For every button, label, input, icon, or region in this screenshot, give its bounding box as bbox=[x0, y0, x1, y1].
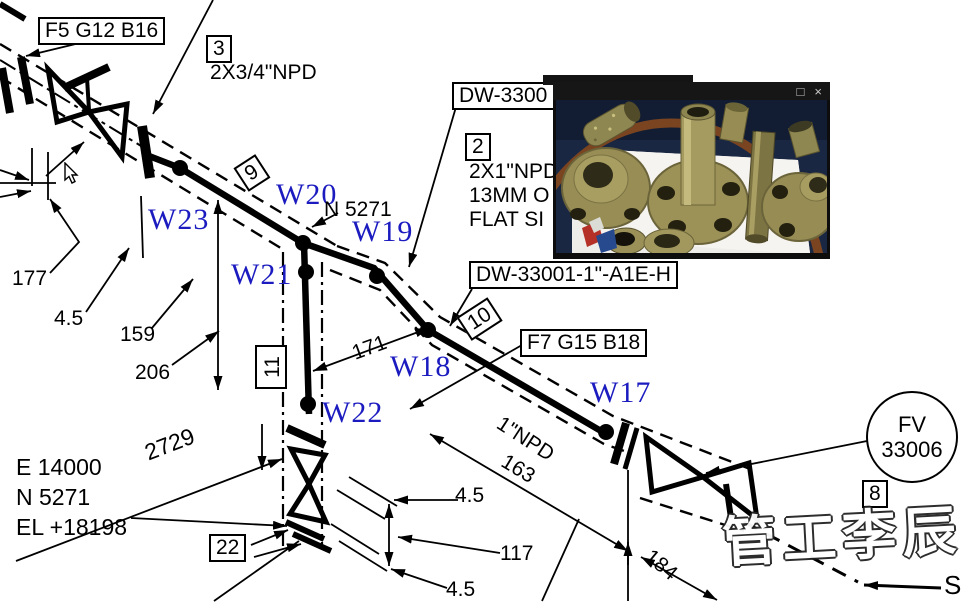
dim-4-5-a: 4.5 bbox=[54, 307, 83, 331]
label-2x34npd: 2X3/4"NPD bbox=[210, 61, 317, 85]
tag-box-f5-g12-b16: F5 G12 B16 bbox=[38, 17, 165, 45]
fv-tag-line2: 33006 bbox=[881, 437, 942, 462]
mouse-cursor-icon bbox=[64, 162, 82, 186]
dim-4-5-c: 4.5 bbox=[446, 578, 475, 602]
maximize-icon[interactable]: □ bbox=[797, 85, 805, 98]
tag-box-f7-g15-b18: F7 G15 B18 bbox=[520, 329, 647, 357]
close-icon[interactable]: × bbox=[814, 85, 822, 98]
tag-box-11-text: 11 bbox=[253, 356, 293, 378]
weld-label-w21: W21 bbox=[231, 258, 292, 292]
label-13mm: 13MM O bbox=[469, 184, 553, 208]
tag-box-22: 22 bbox=[209, 534, 246, 562]
label-n5271: N 5271 bbox=[324, 198, 392, 222]
dim-159: 159 bbox=[120, 323, 155, 347]
watermark-text: 管工李辰 bbox=[720, 486, 964, 578]
instrument-tag-fv-33006: FV 33006 bbox=[866, 391, 958, 483]
fv-tag-line1: FV bbox=[898, 412, 926, 437]
tag-box-11: 11 bbox=[255, 345, 287, 389]
coordinate-north: N 5271 bbox=[16, 482, 127, 512]
coordinate-block: E 14000 N 5271 EL +18198 bbox=[16, 452, 127, 542]
photo-window-titlebar[interactable]: □ × bbox=[553, 82, 830, 100]
weld-label-w23: W23 bbox=[148, 203, 209, 237]
dim-206: 206 bbox=[135, 361, 170, 385]
pipe-fittings-photo bbox=[556, 100, 827, 253]
photo-viewer-window[interactable]: □ × bbox=[553, 82, 830, 259]
tag-box-dw33001: DW-33001-1"-A1E-H bbox=[469, 261, 678, 289]
label-2x1npd: 2X1"NPD bbox=[469, 160, 553, 184]
left-flange bbox=[562, 148, 650, 228]
isometric-piping-drawing: F5 G12 B16 3 2X3/4"NPD DW-3300 2 2X1"NPD… bbox=[0, 0, 964, 602]
weld-label-w22: W22 bbox=[322, 396, 383, 430]
dim-117: 117 bbox=[500, 542, 533, 566]
weld-label-w17: W17 bbox=[590, 376, 651, 410]
label-flat: FLAT SI bbox=[469, 208, 553, 232]
dim-177: 177 bbox=[12, 267, 47, 291]
tag-box-dw3300: DW-3300 bbox=[452, 82, 565, 110]
tag-box-2: 2 bbox=[465, 133, 491, 161]
dim-4-5-b: 4.5 bbox=[455, 484, 484, 508]
coordinate-elevation: EL +18198 bbox=[16, 512, 127, 542]
tag-box-3: 3 bbox=[206, 35, 232, 63]
weld-label-w18: W18 bbox=[390, 350, 451, 384]
label-flow-s: S bbox=[944, 570, 961, 601]
coordinate-east: E 14000 bbox=[16, 452, 127, 482]
